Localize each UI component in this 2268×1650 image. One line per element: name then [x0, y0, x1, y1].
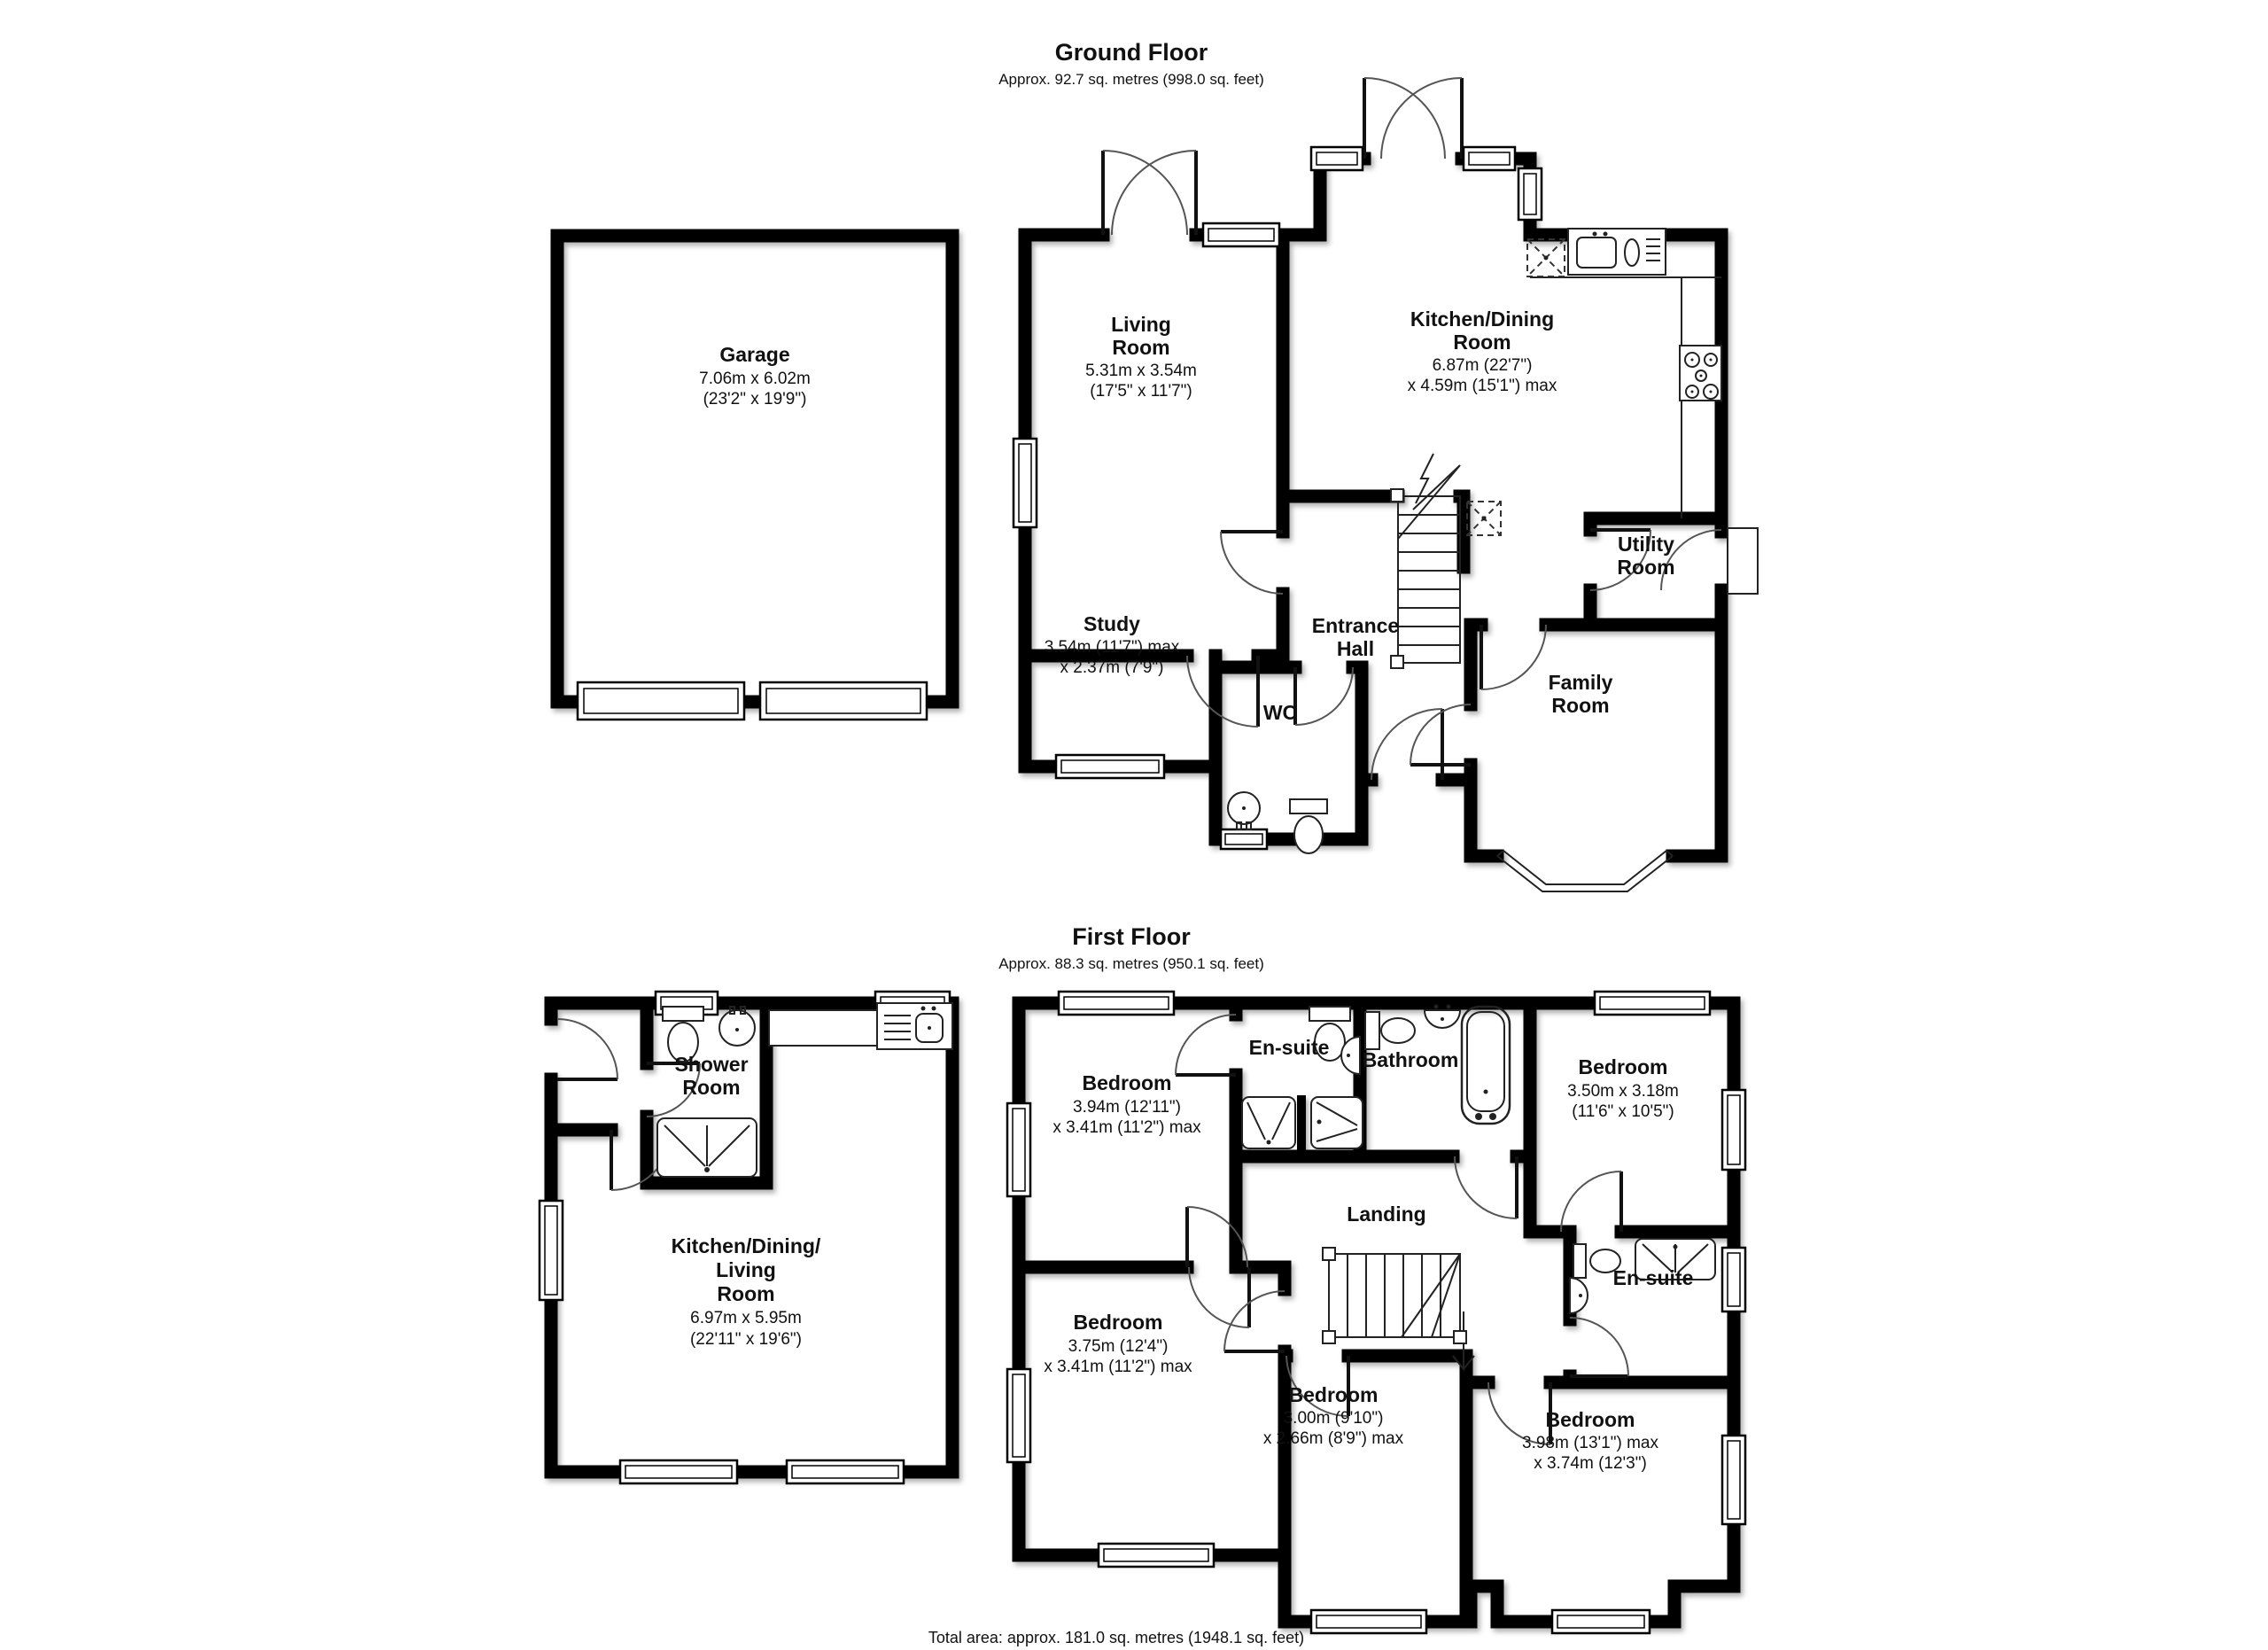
shower-divider-stub — [1297, 1095, 1306, 1156]
room-name: Kitchen/Dining/ — [672, 1234, 821, 1257]
room-dim-imperial: x 3.41m (11'2") max — [1044, 1358, 1192, 1376]
kitchen-sink — [1568, 229, 1666, 275]
wc-window — [1221, 829, 1267, 849]
room-name: Living — [716, 1258, 776, 1281]
bedroom4-window — [1311, 1610, 1426, 1633]
bedroom2-side-window — [1722, 1090, 1745, 1170]
ground-floor-subtitle: Approx. 92.7 sq. metres (998.0 sq. feet) — [998, 71, 1264, 88]
floorplan-page: Ground Floor Approx. 92.7 sq. metres (99… — [0, 0, 2268, 1650]
room-name: Family — [1549, 671, 1613, 694]
annexe-window — [620, 1460, 737, 1483]
room-name: Shower — [674, 1053, 748, 1076]
annexe-window — [787, 1460, 904, 1483]
room-name: Living — [1111, 313, 1171, 336]
room-dim-imperial: x 3.74m (12'3") — [1534, 1454, 1647, 1473]
living-french-door-arcs — [1103, 151, 1196, 235]
room-name: Hall — [1337, 637, 1374, 660]
family-room-label: Family Room — [1549, 671, 1613, 717]
annexe-side-window — [540, 1201, 563, 1300]
room-dim-imperial: (23'2" x 19'9") — [703, 390, 807, 409]
room-name: Garage — [719, 343, 789, 366]
garage-door — [760, 682, 927, 720]
room-dim-imperial: x 4.59m (15'1") max — [1408, 377, 1557, 395]
first-floor-subtitle: Approx. 88.3 sq. metres (950.1 sq. feet) — [998, 955, 1264, 972]
room-name: Bedroom — [1074, 1311, 1163, 1334]
garage-floor — [557, 236, 952, 702]
kitchen-window — [1311, 147, 1363, 170]
garage-door — [578, 682, 744, 720]
room-name: Kitchen/Dining — [1410, 307, 1554, 331]
hob — [1680, 346, 1721, 401]
bedroom3-side-window — [1007, 1369, 1030, 1462]
shower-tray — [1311, 1097, 1363, 1148]
room-dim-imperial: x 2.37m (7'9") — [1060, 658, 1163, 677]
bedroom2-window — [1595, 992, 1710, 1015]
room-name: Room — [1551, 694, 1609, 717]
bedroom3-window — [1099, 1544, 1214, 1567]
shower-tray — [657, 1118, 757, 1177]
room-dim-metric: 3.54m (11'7") max — [1045, 638, 1180, 657]
room-name: Room — [682, 1076, 740, 1099]
ensuite2-side-window — [1722, 1248, 1745, 1311]
room-dim-metric: 3.94m (12'11") — [1073, 1098, 1181, 1117]
kitchen-side-window — [1518, 168, 1542, 220]
total-area-footer: Total area: approx. 181.0 sq. metres (19… — [928, 1629, 1304, 1646]
room-dim-imperial: (17'5" x 11'7") — [1090, 382, 1192, 401]
room-dim-imperial: (22'11" x 19'6") — [690, 1330, 802, 1349]
bedroom5-window — [1552, 1610, 1650, 1633]
floorplan-drawing: Ground Floor Approx. 92.7 sq. metres (99… — [0, 0, 2268, 1650]
ground-floor-title: Ground Floor — [1055, 39, 1208, 66]
utility-exterior-door-panel — [1728, 528, 1758, 594]
annexe-kitchen-counter — [769, 1003, 952, 1049]
first-floor-title: First Floor — [1072, 923, 1191, 950]
room-name: Room — [1453, 331, 1511, 354]
room-name: Entrance — [1312, 614, 1399, 637]
kitchen-french-door-leaves — [1364, 78, 1462, 159]
ensuite2-label: En-suite — [1613, 1266, 1694, 1289]
room-name: Utility — [1618, 533, 1674, 556]
room-name: Study — [1084, 612, 1140, 635]
landing-label: Landing — [1347, 1202, 1425, 1226]
kitchen-french-door-arcs — [1364, 78, 1462, 159]
room-name: Room — [1617, 556, 1674, 579]
ensuite1-label: En-suite — [1249, 1036, 1330, 1059]
room-dim-imperial: (11'6" x 10'5") — [1572, 1102, 1674, 1121]
shower-tray — [1242, 1097, 1295, 1148]
bedroom1-window — [1059, 992, 1174, 1015]
living-window — [1203, 223, 1279, 246]
room-dim-metric: 3.50m x 3.18m — [1567, 1082, 1679, 1101]
bathroom-label: Bathroom — [1363, 1048, 1459, 1071]
bedroom5-side-window — [1722, 1436, 1745, 1524]
room-dim-metric: 5.31m x 3.54m — [1085, 362, 1197, 380]
room-name: Room — [717, 1282, 774, 1305]
room-dim-metric: 6.97m x 5.95m — [690, 1309, 802, 1327]
room-dim-metric: 3.98m (13'1") max — [1522, 1434, 1658, 1452]
bedroom1-side-window — [1007, 1103, 1030, 1196]
living-french-door-leaves — [1103, 151, 1196, 235]
room-name: Bedroom — [1579, 1055, 1668, 1078]
utility-room-label: Utility Room — [1617, 533, 1674, 579]
room-name: Bedroom — [1546, 1408, 1635, 1431]
room-dim-imperial: x 2.66m (8'9") max — [1263, 1429, 1404, 1448]
living-side-window — [1014, 439, 1037, 527]
bedroom2-label: Bedroom 3.50m x 3.18m (11'6" x 10'5") — [1567, 1055, 1679, 1121]
kitchen-window — [1464, 147, 1515, 170]
wc-label: WC — [1263, 701, 1297, 724]
room-dim-metric: 7.06m x 6.02m — [699, 370, 811, 388]
room-dim-metric: 3.75m (12'4") — [1068, 1337, 1169, 1356]
room-name: Room — [1112, 336, 1169, 359]
room-dim-metric: 3.00m (9'10") — [1284, 1409, 1384, 1428]
study-window — [1056, 755, 1164, 778]
room-dim-metric: 6.87m (22'7") — [1433, 356, 1533, 375]
room-dim-imperial: x 3.41m (11'2") max — [1052, 1118, 1201, 1137]
room-name: Bedroom — [1289, 1383, 1379, 1406]
shower-room-label: Shower Room — [674, 1053, 748, 1099]
room-name: Bedroom — [1083, 1071, 1172, 1094]
